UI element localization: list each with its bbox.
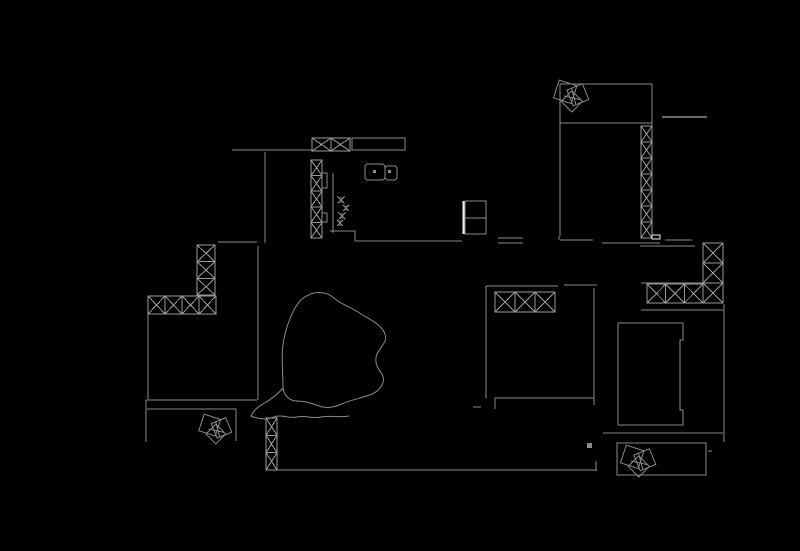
plant-top-room (553, 80, 588, 112)
small-bright-marker (652, 235, 660, 239)
stove-burner-mark (339, 213, 346, 220)
top-room-wall-column (641, 126, 652, 238)
filled-square-marker (587, 443, 592, 448)
tree-canopy (251, 293, 386, 419)
fixtures (322, 138, 706, 475)
sink-drain-left (373, 170, 376, 173)
bedroom2-corner-column (703, 243, 723, 303)
left-window-row (148, 296, 216, 314)
app-root: { "meta": { "app": "cad-floor-plan-view"… (0, 0, 800, 551)
foyer-wall-column (266, 418, 277, 470)
bedroom2-window-row (647, 284, 703, 303)
stove-burner-mark (337, 220, 343, 226)
plant-planter (620, 445, 655, 477)
stove-burner-mark (338, 197, 345, 204)
cad-viewport (0, 0, 800, 551)
bedroom1-window-row (495, 292, 555, 312)
cabinet-strip-upper (322, 173, 327, 188)
kitchen-window-top (312, 138, 350, 151)
shapes (251, 293, 683, 426)
glyphs (337, 197, 349, 227)
wardrobe-bed (618, 323, 683, 425)
walls (146, 84, 724, 471)
kitchen-wall-column (311, 160, 322, 238)
kitchen-countertop (352, 138, 405, 150)
plants (199, 80, 656, 477)
planter-box (617, 443, 706, 475)
hatched-walls (148, 126, 723, 470)
cabinet-strip-lower (322, 213, 327, 222)
floor-plan-drawing (0, 0, 800, 551)
left-wall-column (197, 245, 215, 295)
sink-drain-right (388, 170, 391, 173)
stove-burner-mark (343, 205, 349, 211)
plant-foyer (199, 414, 232, 444)
